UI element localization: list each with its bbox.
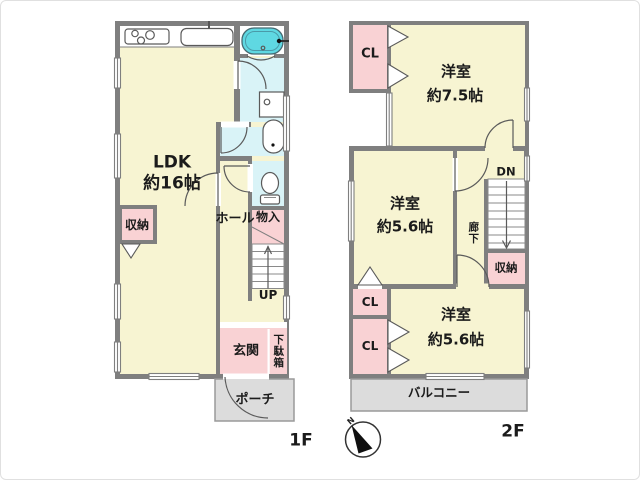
- room-label-genkan: 玄関: [233, 345, 259, 358]
- room-label-getabako: 下駄箱: [273, 334, 284, 369]
- floor-plan-image: N LDK 約16帖 収納 ホール 物入 UP 玄関 下駄箱 ポーチ 1F CL…: [0, 0, 640, 480]
- room-label-storage-2f: 収納: [495, 262, 518, 274]
- room-label-cl-top: CL: [361, 48, 379, 61]
- stairs-1f-icon: [252, 244, 284, 289]
- room-label-western-56-mid: 洋室: [390, 197, 420, 212]
- stairs-2f-icon: [488, 179, 525, 249]
- room-western-75: [391, 25, 525, 146]
- toilet-icon: [261, 173, 280, 205]
- room-label-monoire: 物入: [256, 211, 280, 223]
- room-label-hall: ホール: [215, 213, 254, 226]
- room-label-porch: ポーチ: [235, 394, 274, 407]
- compass-icon: N: [346, 415, 381, 457]
- room-size-ldk: 約16帖: [143, 176, 201, 193]
- room-label-balcony: バルコニー: [408, 387, 470, 400]
- washing-machine-icon: [260, 92, 285, 117]
- floor-label-1f: 1F: [289, 433, 312, 450]
- room-label-ldk: LDK: [153, 155, 191, 172]
- room-label-corridor: 廊下: [468, 222, 479, 245]
- room-size-western-56-low: 約5.6帖: [428, 333, 485, 348]
- room-size-western-56-mid: 約5.6帖: [377, 220, 434, 235]
- faucet-icon: [277, 39, 281, 43]
- washbasin-icon: [263, 120, 284, 153]
- shoe-cabinet-divider: [268, 329, 270, 374]
- stairs-label-dn: DN: [496, 166, 515, 178]
- room-label-cl-mid: CL: [362, 296, 378, 308]
- bathroom: [240, 26, 289, 56]
- wall-ldk-hall: [216, 127, 220, 379]
- room-label-western-56-low: 洋室: [441, 308, 471, 323]
- floor-plan-drawing: N: [1, 1, 640, 480]
- room-label-cl-low: CL: [362, 340, 378, 352]
- floor-label-2f: 2F: [501, 424, 524, 441]
- room-label-storage-1f: 収納: [125, 219, 149, 231]
- room-label-western-75: 洋室: [441, 65, 471, 80]
- room-size-western-75: 約7.5帖: [427, 89, 484, 104]
- stairs-label-up: UP: [259, 289, 278, 301]
